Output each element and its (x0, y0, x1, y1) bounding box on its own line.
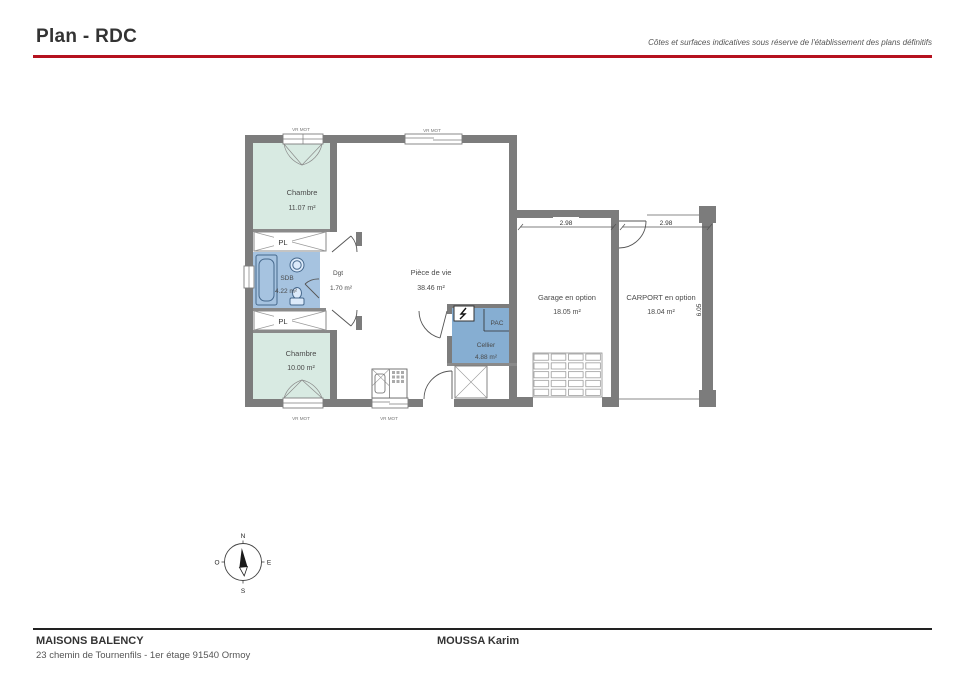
window-cuisine (372, 398, 408, 408)
label-window-2: VR MOT (423, 128, 441, 133)
label-piece-de-vie: Pièce de vie (411, 268, 452, 277)
carport-right-wall (702, 210, 713, 404)
area-carport: 18.04 m² (647, 309, 675, 316)
dim-garage-width: 2.98 (560, 220, 573, 227)
label-pl-top: PL (278, 238, 287, 247)
compass-south: S (241, 588, 246, 595)
label-chambre2: Chambre (286, 349, 317, 358)
footer-company: MAISONS BALENCY (36, 635, 144, 647)
door-chambre2 (332, 310, 357, 326)
area-dgt: 1.70 m² (330, 285, 353, 292)
door-chambre1 (332, 236, 357, 252)
footer-rule (33, 628, 932, 630)
area-chambre1: 11.07 m² (288, 205, 316, 212)
window-piece-de-vie (405, 134, 462, 144)
footer-client-name: MOUSSA Karim (437, 635, 519, 647)
label-chambre1: Chambre (287, 188, 318, 197)
dim-carport-width: 2.98 (660, 220, 673, 227)
compass-rose: N S O E (214, 533, 271, 595)
label-window-4: VR MOT (380, 416, 398, 421)
kitchen-unit (372, 369, 407, 398)
room-fills (253, 143, 509, 399)
label-pac: PAC (491, 320, 504, 327)
compass-north: N (241, 533, 246, 540)
door-cellier (419, 311, 447, 338)
wall-dgt-stub-top (356, 232, 362, 246)
wall-cellier-bottom (447, 363, 517, 366)
footer-address: 23 chemin de Tournenfils - 1er étage 915… (36, 650, 250, 661)
label-cellier: Cellier (477, 342, 496, 349)
label-window-3: VR MOT (292, 416, 310, 421)
wall-dgt-stub-bottom (356, 316, 362, 330)
area-cellier: 4.88 m² (475, 354, 498, 361)
wall-chambre2-right (330, 330, 337, 399)
label-window-1: VR MOT (292, 127, 310, 132)
label-pl-bottom: PL (278, 317, 287, 326)
electrical-panel (454, 306, 474, 321)
garage-carport (517, 206, 716, 407)
wall-garage-top (517, 210, 619, 218)
floor-plan: PL PL (0, 0, 960, 679)
wall-garage-carport-divider (611, 218, 619, 407)
door-entry (423, 371, 454, 407)
label-carport: CARPORT en option (626, 293, 695, 302)
area-sdb: 4.22 m² (275, 288, 298, 295)
label-garage: Garage en option (538, 293, 596, 302)
door-carport (619, 221, 646, 248)
wall-chambre1-right (330, 143, 337, 232)
garage-door (533, 353, 602, 397)
area-chambre2: 10.00 m² (287, 365, 315, 372)
plan-page: Plan - RDC Côtes et surfaces indicatives… (0, 0, 960, 679)
area-garage: 18.05 m² (553, 309, 581, 316)
compass-east: E (267, 560, 272, 567)
compass-west: O (214, 560, 219, 567)
hatch-box (455, 366, 487, 398)
label-dgt: Dgt (333, 270, 343, 277)
area-piece-de-vie: 38.46 m² (417, 285, 445, 292)
label-sdb: SDB (280, 275, 293, 282)
room-chambre1 (253, 143, 330, 229)
dim-carport-depth: 6.05 (696, 303, 703, 316)
sink (290, 258, 304, 272)
